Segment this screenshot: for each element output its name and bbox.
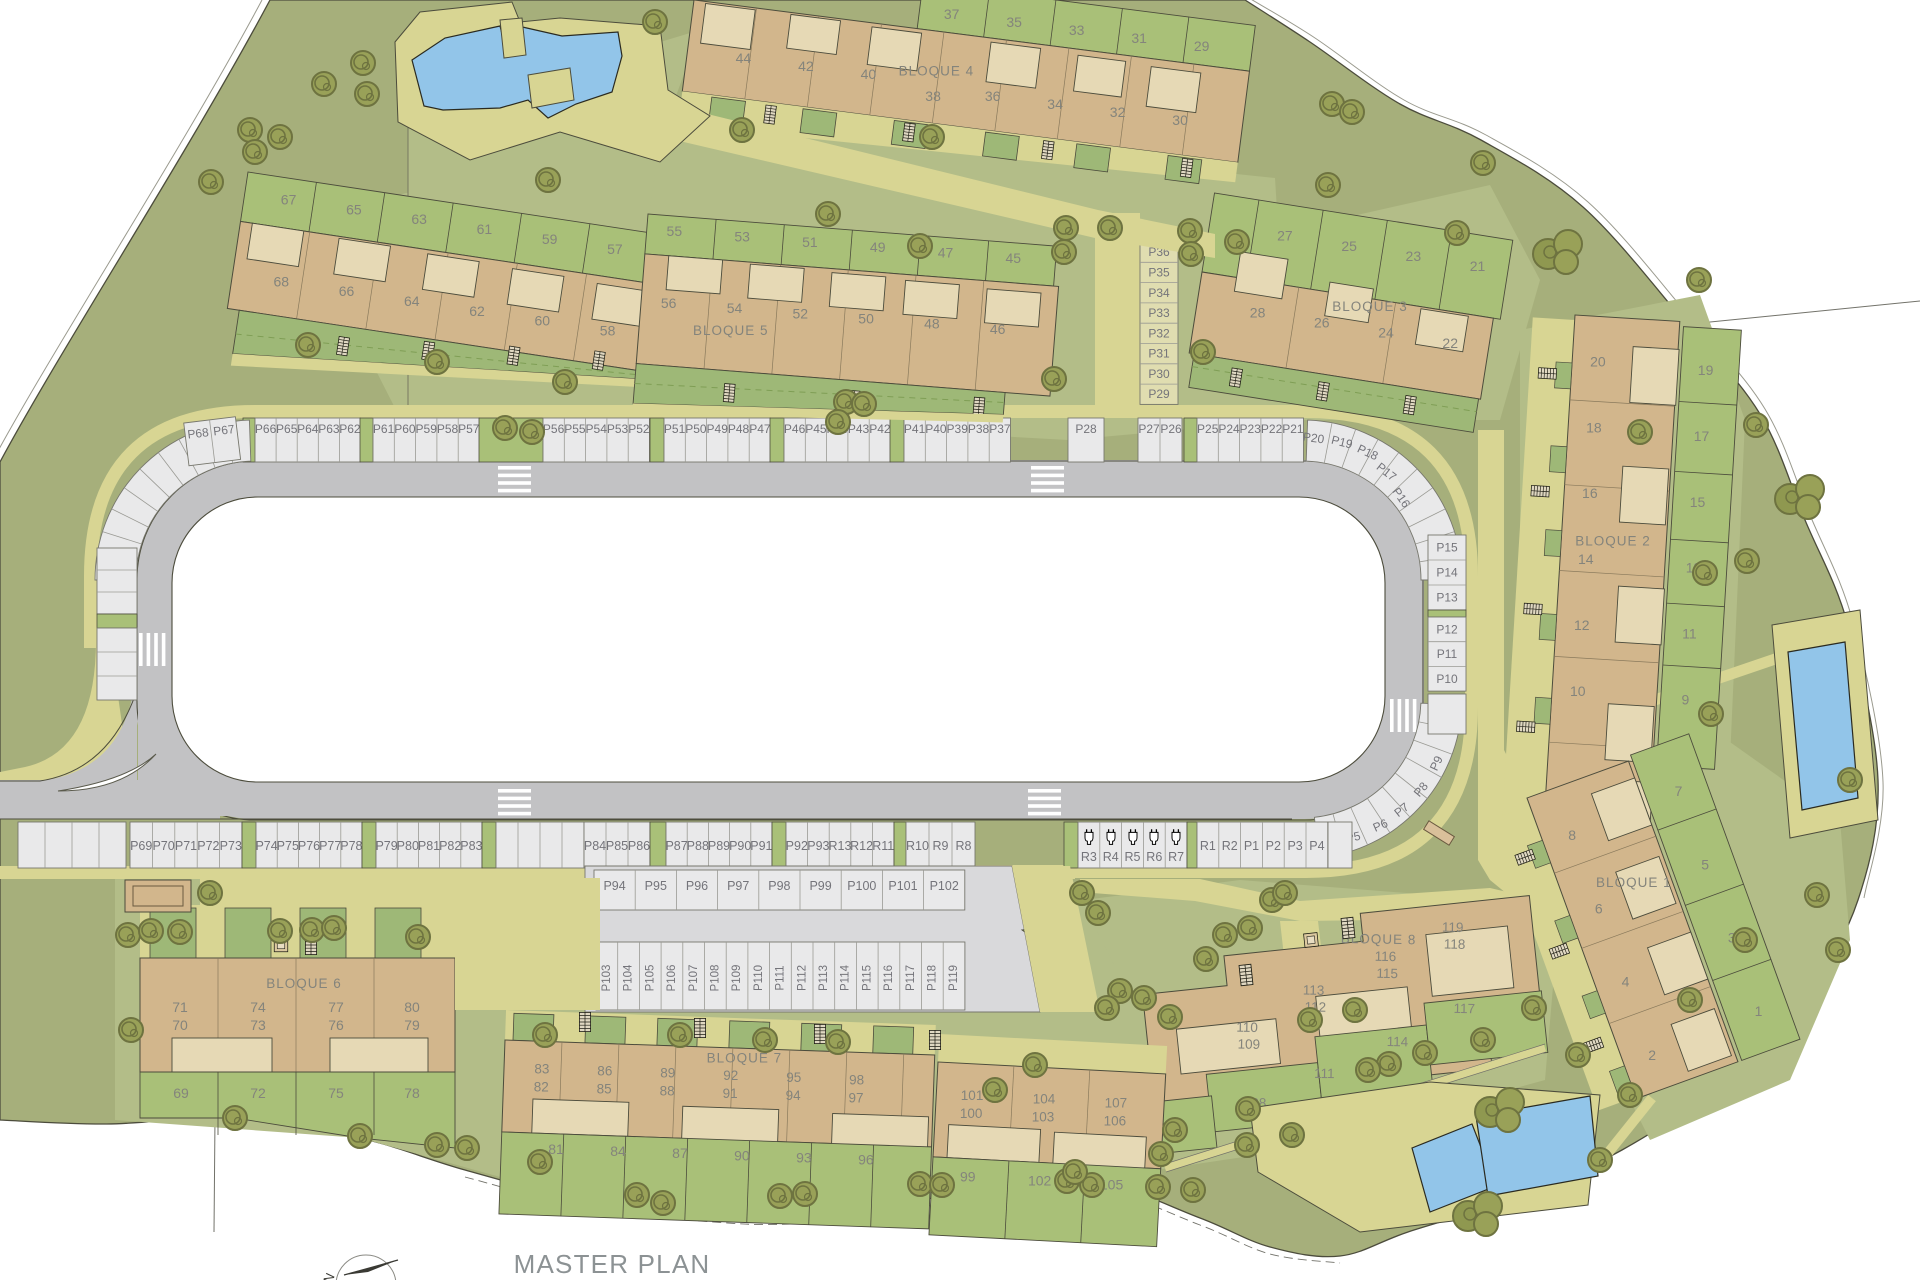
svg-text:P110: P110 — [753, 965, 765, 991]
svg-text:32: 32 — [1110, 104, 1126, 120]
svg-text:P45: P45 — [805, 422, 827, 436]
svg-text:P34: P34 — [1148, 286, 1170, 300]
svg-text:47: 47 — [938, 244, 954, 260]
svg-text:P107: P107 — [688, 965, 700, 992]
svg-text:69: 69 — [173, 1085, 189, 1101]
svg-text:R8: R8 — [956, 839, 972, 853]
svg-text:P117: P117 — [905, 965, 917, 991]
svg-text:31: 31 — [1131, 30, 1147, 46]
svg-text:P30: P30 — [1148, 367, 1170, 381]
svg-text:P93: P93 — [807, 839, 829, 853]
svg-text:100: 100 — [960, 1106, 983, 1121]
svg-text:P88: P88 — [687, 839, 709, 853]
svg-text:10: 10 — [1570, 683, 1586, 699]
svg-text:P103: P103 — [601, 965, 613, 992]
svg-text:P41: P41 — [904, 422, 926, 436]
svg-text:117: 117 — [1453, 1001, 1475, 1016]
svg-text:BLOQUE 4: BLOQUE 4 — [899, 63, 975, 78]
svg-text:55: 55 — [667, 223, 683, 239]
svg-text:P29: P29 — [1148, 387, 1170, 401]
svg-text:87: 87 — [672, 1145, 688, 1161]
svg-text:46: 46 — [990, 321, 1006, 337]
svg-text:101: 101 — [961, 1088, 984, 1103]
svg-text:P113: P113 — [818, 965, 830, 991]
svg-text:52: 52 — [792, 305, 808, 321]
svg-text:P10: P10 — [1436, 672, 1458, 686]
svg-text:P97: P97 — [727, 879, 749, 893]
svg-text:P15: P15 — [1436, 541, 1458, 555]
svg-text:102: 102 — [1028, 1172, 1052, 1188]
svg-text:P90: P90 — [729, 839, 751, 853]
svg-text:P86: P86 — [628, 839, 650, 853]
svg-text:65: 65 — [346, 201, 362, 217]
svg-text:P28: P28 — [1075, 422, 1097, 436]
svg-text:6: 6 — [1595, 900, 1603, 916]
svg-text:BLOQUE 7: BLOQUE 7 — [707, 1050, 783, 1065]
svg-text:48: 48 — [924, 316, 940, 332]
svg-text:P108: P108 — [710, 965, 722, 992]
svg-text:5: 5 — [1701, 856, 1709, 872]
svg-text:19: 19 — [1698, 362, 1714, 378]
svg-text:P63: P63 — [318, 422, 340, 436]
svg-text:29: 29 — [1194, 38, 1210, 54]
svg-text:63: 63 — [411, 211, 427, 227]
svg-text:P100: P100 — [847, 879, 876, 893]
svg-text:P72: P72 — [197, 839, 219, 853]
svg-text:P4: P4 — [1309, 839, 1324, 853]
svg-text:R3: R3 — [1081, 850, 1097, 864]
svg-text:P13: P13 — [1436, 591, 1458, 605]
svg-text:68: 68 — [273, 273, 289, 289]
svg-text:P98: P98 — [768, 879, 790, 893]
svg-text:P66: P66 — [255, 422, 277, 436]
svg-text:P65: P65 — [276, 422, 298, 436]
svg-text:P54: P54 — [586, 422, 608, 436]
svg-text:P106: P106 — [666, 965, 678, 992]
svg-text:P67: P67 — [212, 422, 235, 439]
svg-text:P78: P78 — [340, 839, 362, 853]
svg-text:49: 49 — [870, 239, 886, 255]
svg-text:R5: R5 — [1125, 850, 1141, 864]
svg-text:P118: P118 — [927, 965, 939, 991]
svg-text:P38: P38 — [968, 422, 990, 436]
svg-text:77: 77 — [328, 999, 344, 1015]
svg-text:P116: P116 — [883, 965, 895, 991]
svg-text:P51: P51 — [664, 422, 686, 436]
svg-text:8: 8 — [1568, 827, 1576, 843]
svg-text:12: 12 — [1574, 617, 1590, 633]
svg-text:15: 15 — [1690, 494, 1706, 510]
svg-text:103: 103 — [1032, 1110, 1055, 1125]
svg-text:P59: P59 — [416, 422, 438, 436]
svg-text:53: 53 — [734, 228, 750, 244]
svg-text:4: 4 — [1622, 974, 1630, 990]
svg-text:95: 95 — [786, 1070, 801, 1085]
svg-text:P79: P79 — [375, 839, 397, 853]
svg-text:14: 14 — [1578, 551, 1594, 567]
svg-text:P37: P37 — [989, 422, 1011, 436]
svg-text:17: 17 — [1694, 428, 1710, 444]
svg-text:P81: P81 — [418, 839, 440, 853]
svg-text:P111: P111 — [775, 965, 787, 990]
svg-text:P50: P50 — [685, 422, 707, 436]
svg-text:1: 1 — [1755, 1003, 1763, 1019]
svg-text:P42: P42 — [869, 422, 891, 436]
svg-text:26: 26 — [1314, 314, 1330, 330]
svg-text:P95: P95 — [645, 879, 667, 893]
svg-text:P23: P23 — [1240, 422, 1262, 436]
svg-text:P3: P3 — [1287, 839, 1302, 853]
svg-text:80: 80 — [404, 999, 420, 1015]
svg-text:92: 92 — [723, 1068, 738, 1083]
svg-text:P2: P2 — [1266, 839, 1281, 853]
svg-text:34: 34 — [1047, 96, 1063, 112]
svg-text:16: 16 — [1582, 485, 1598, 501]
svg-text:58: 58 — [600, 323, 616, 339]
svg-text:P32: P32 — [1148, 326, 1170, 340]
svg-text:P1: P1 — [1244, 839, 1259, 853]
svg-text:64: 64 — [404, 293, 420, 309]
svg-text:P55: P55 — [564, 422, 586, 436]
svg-text:P48: P48 — [728, 422, 750, 436]
svg-text:28: 28 — [1250, 304, 1266, 320]
svg-text:P57: P57 — [458, 422, 480, 436]
svg-text:P87: P87 — [665, 839, 687, 853]
svg-text:106: 106 — [1104, 1113, 1127, 1128]
svg-text:70: 70 — [172, 1017, 188, 1033]
svg-text:99: 99 — [960, 1169, 976, 1185]
svg-text:9: 9 — [1682, 691, 1690, 707]
svg-text:113: 113 — [1303, 982, 1325, 997]
svg-text:P39: P39 — [947, 422, 969, 436]
svg-text:P35: P35 — [1148, 265, 1170, 279]
svg-text:P53: P53 — [607, 422, 629, 436]
svg-text:57: 57 — [607, 241, 623, 257]
svg-text:MASTER PLAN: MASTER PLAN — [514, 1249, 711, 1279]
svg-text:P56: P56 — [543, 422, 565, 436]
svg-text:P64: P64 — [297, 422, 319, 436]
svg-text:R11: R11 — [872, 839, 894, 853]
svg-text:P24: P24 — [1218, 422, 1240, 436]
svg-text:P109: P109 — [731, 965, 743, 992]
svg-text:P58: P58 — [437, 422, 459, 436]
svg-text:P91: P91 — [750, 839, 772, 853]
svg-text:BLOQUE 5: BLOQUE 5 — [693, 323, 769, 338]
svg-text:P105: P105 — [644, 965, 656, 992]
svg-text:P84: P84 — [584, 839, 606, 853]
svg-text:P46: P46 — [784, 422, 806, 436]
svg-text:P82: P82 — [439, 839, 461, 853]
svg-text:24: 24 — [1378, 325, 1394, 341]
svg-text:P31: P31 — [1148, 347, 1170, 361]
svg-text:42: 42 — [798, 58, 814, 74]
svg-text:59: 59 — [542, 231, 558, 247]
svg-text:119: 119 — [1442, 920, 1464, 935]
svg-text:P73: P73 — [220, 839, 242, 853]
svg-text:50: 50 — [858, 310, 874, 326]
svg-text:91: 91 — [723, 1086, 738, 1101]
svg-text:30: 30 — [1172, 112, 1188, 128]
svg-text:P115: P115 — [861, 965, 873, 991]
svg-text:P60: P60 — [394, 422, 416, 436]
svg-text:76: 76 — [328, 1017, 344, 1033]
svg-text:P33: P33 — [1148, 306, 1170, 320]
svg-text:P25: P25 — [1197, 422, 1219, 436]
svg-text:116: 116 — [1375, 949, 1397, 964]
svg-text:18: 18 — [1586, 419, 1602, 435]
svg-text:P40: P40 — [925, 422, 947, 436]
svg-text:P94: P94 — [603, 879, 625, 893]
svg-text:P89: P89 — [708, 839, 730, 853]
svg-text:R6: R6 — [1146, 850, 1162, 864]
svg-text:60: 60 — [535, 313, 551, 329]
svg-text:51: 51 — [802, 234, 818, 250]
svg-text:P75: P75 — [277, 839, 299, 853]
svg-text:83: 83 — [534, 1061, 549, 1076]
svg-text:P61: P61 — [373, 422, 395, 436]
svg-text:2: 2 — [1648, 1047, 1656, 1063]
svg-text:P49: P49 — [707, 422, 729, 436]
svg-text:P104: P104 — [623, 964, 635, 991]
svg-text:21: 21 — [1470, 258, 1486, 274]
svg-text:90: 90 — [734, 1147, 750, 1163]
svg-text:23: 23 — [1406, 248, 1422, 264]
svg-text:P43: P43 — [848, 422, 870, 436]
svg-text:P92: P92 — [786, 839, 808, 853]
svg-text:20: 20 — [1590, 353, 1606, 369]
svg-text:79: 79 — [404, 1017, 420, 1033]
svg-text:107: 107 — [1105, 1095, 1128, 1110]
svg-text:33: 33 — [1069, 22, 1085, 38]
svg-text:111: 111 — [1314, 1066, 1335, 1081]
svg-text:67: 67 — [281, 191, 297, 207]
svg-text:P11: P11 — [1437, 647, 1458, 661]
svg-text:104: 104 — [1033, 1092, 1056, 1107]
svg-text:75: 75 — [328, 1085, 344, 1101]
svg-text:97: 97 — [849, 1090, 864, 1105]
svg-text:P114: P114 — [840, 964, 852, 991]
svg-text:P102: P102 — [930, 879, 959, 893]
svg-text:56: 56 — [661, 295, 677, 311]
svg-text:7: 7 — [1675, 783, 1683, 799]
svg-text:P26: P26 — [1160, 422, 1182, 436]
svg-text:P112: P112 — [796, 965, 808, 991]
svg-text:85: 85 — [597, 1081, 612, 1096]
svg-text:P14: P14 — [1436, 566, 1458, 580]
svg-text:88: 88 — [660, 1084, 675, 1099]
svg-text:P99: P99 — [809, 879, 831, 893]
svg-text:78: 78 — [404, 1085, 420, 1101]
svg-text:66: 66 — [339, 283, 355, 299]
svg-text:P96: P96 — [686, 879, 708, 893]
svg-text:P101: P101 — [888, 879, 917, 893]
svg-text:94: 94 — [786, 1088, 802, 1103]
svg-text:109: 109 — [1237, 1037, 1260, 1052]
svg-text:89: 89 — [660, 1066, 675, 1081]
svg-text:P68: P68 — [187, 425, 210, 442]
svg-text:54: 54 — [727, 300, 743, 316]
svg-text:P85: P85 — [606, 839, 628, 853]
svg-text:81: 81 — [548, 1141, 564, 1157]
svg-text:25: 25 — [1341, 238, 1357, 254]
svg-text:BLOQUE 2: BLOQUE 2 — [1575, 534, 1651, 549]
svg-text:96: 96 — [858, 1152, 874, 1168]
svg-text:P83: P83 — [460, 839, 482, 853]
svg-text:82: 82 — [534, 1079, 549, 1094]
svg-text:62: 62 — [469, 303, 485, 319]
svg-text:BLOQUE 3: BLOQUE 3 — [1332, 299, 1408, 314]
svg-text:P27: P27 — [1138, 422, 1160, 436]
svg-text:P52: P52 — [628, 422, 650, 436]
svg-text:36: 36 — [985, 88, 1001, 104]
svg-text:115: 115 — [1376, 966, 1398, 981]
svg-text:P21: P21 — [1282, 422, 1304, 436]
svg-text:38: 38 — [925, 88, 941, 104]
svg-text:R4: R4 — [1103, 850, 1119, 864]
svg-text:P80: P80 — [397, 839, 419, 853]
svg-text:BLOQUE 1: BLOQUE 1 — [1596, 875, 1672, 890]
svg-text:P22: P22 — [1261, 422, 1283, 436]
svg-text:R2: R2 — [1222, 839, 1238, 853]
svg-text:93: 93 — [796, 1150, 812, 1166]
svg-text:R7: R7 — [1168, 850, 1184, 864]
svg-text:P20: P20 — [1302, 430, 1325, 447]
svg-text:11: 11 — [1682, 626, 1697, 642]
svg-text:P70: P70 — [152, 839, 174, 853]
svg-text:BLOQUE 6: BLOQUE 6 — [266, 976, 342, 991]
svg-text:86: 86 — [597, 1064, 612, 1079]
svg-text:114: 114 — [1387, 1034, 1409, 1049]
svg-text:84: 84 — [610, 1143, 626, 1159]
svg-text:P76: P76 — [298, 839, 320, 853]
svg-text:37: 37 — [944, 6, 960, 22]
svg-text:P69: P69 — [130, 839, 152, 853]
svg-text:R12: R12 — [850, 839, 873, 853]
svg-text:P119: P119 — [948, 965, 960, 991]
svg-text:110: 110 — [1236, 1020, 1258, 1035]
svg-text:R1: R1 — [1200, 839, 1216, 853]
svg-text:44: 44 — [736, 50, 752, 66]
svg-text:P62: P62 — [339, 422, 361, 436]
svg-text:40: 40 — [861, 66, 877, 82]
svg-text:74: 74 — [250, 999, 266, 1015]
svg-text:72: 72 — [250, 1085, 266, 1101]
svg-text:P47: P47 — [749, 422, 771, 436]
svg-text:P74: P74 — [255, 839, 277, 853]
svg-text:73: 73 — [250, 1017, 266, 1033]
svg-text:R9: R9 — [933, 839, 949, 853]
svg-text:27: 27 — [1277, 228, 1293, 244]
svg-text:45: 45 — [1006, 250, 1022, 266]
svg-text:P71: P71 — [175, 839, 197, 853]
svg-text:22: 22 — [1442, 335, 1458, 351]
svg-text:118: 118 — [1444, 937, 1466, 952]
svg-text:35: 35 — [1006, 14, 1022, 30]
svg-text:P12: P12 — [1436, 622, 1458, 636]
svg-text:61: 61 — [477, 221, 493, 237]
svg-text:P77: P77 — [319, 839, 341, 853]
svg-text:98: 98 — [849, 1072, 864, 1087]
svg-text:71: 71 — [172, 999, 188, 1015]
svg-text:R10: R10 — [906, 839, 929, 853]
svg-text:R13: R13 — [829, 839, 852, 853]
